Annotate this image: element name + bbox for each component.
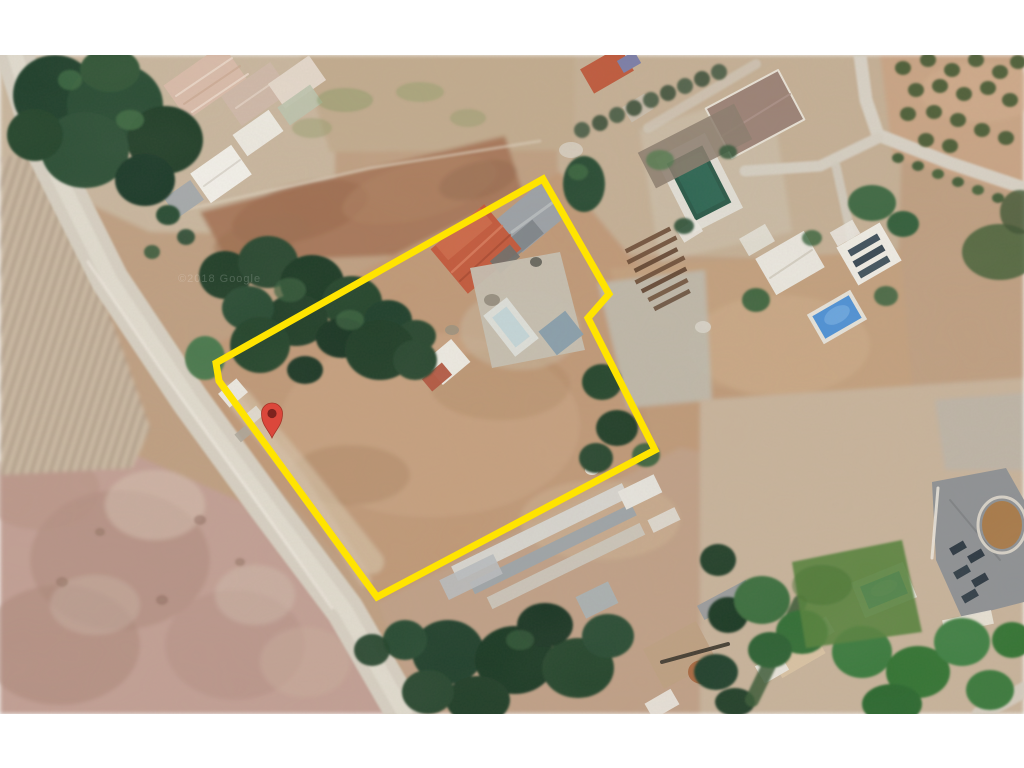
- pin-dot: [267, 409, 276, 418]
- texture-overlay: [0, 55, 1024, 714]
- satellite-map: ©2018 Google: [0, 0, 1024, 768]
- map-watermark: ©2018 Google: [178, 273, 261, 285]
- photo-area: ©2018 Google: [0, 44, 1024, 724]
- grain-texture: [0, 55, 1024, 714]
- map-screenshot: ©2018 Google: [0, 0, 1024, 768]
